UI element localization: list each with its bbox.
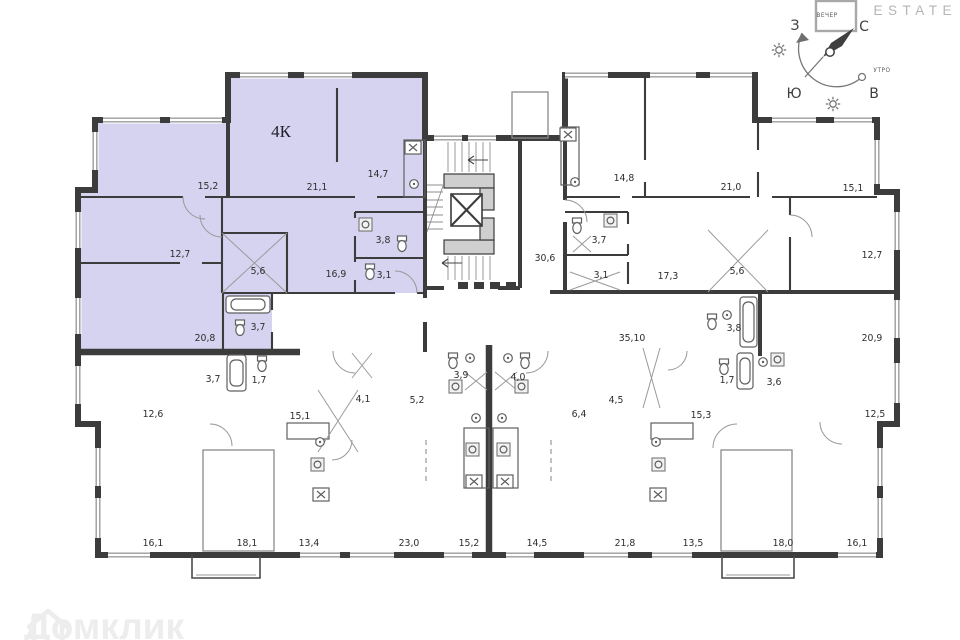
room-area-label: 5,2: [410, 395, 425, 406]
room-area-label: 15,2: [459, 538, 480, 549]
room-area-label-highlighted: 15,2: [198, 181, 219, 192]
room-area-label: 12,6: [143, 409, 164, 420]
room-area-label: 15,3: [691, 410, 712, 421]
room-area-label: 3,7: [592, 235, 607, 246]
room-area-label-highlighted: 3,8: [376, 235, 391, 246]
room-area-label: 3,8: [727, 323, 742, 334]
room-area-label: 6,4: [572, 409, 587, 420]
closet-x-icon: [573, 236, 591, 252]
room-area-label: 12,5: [865, 409, 886, 420]
compass-north: С: [859, 19, 869, 35]
washer-icon: [652, 458, 665, 471]
room-area-label-highlighted: 14,7: [368, 169, 389, 180]
room-area-label-highlighted: 20,8: [195, 333, 216, 344]
room-area-label-highlighted: 5,6: [251, 266, 266, 277]
stove-icon: [405, 141, 421, 154]
washer-icon: [497, 443, 510, 456]
room-area-label: 3,9: [454, 370, 469, 381]
room-area-label: 18,1: [237, 538, 258, 549]
stove-icon: [313, 488, 329, 501]
room-area-label-highlighted: 21,1: [307, 182, 328, 193]
room-area-label: 4,0: [511, 372, 526, 383]
toilet-icon: [449, 353, 458, 369]
room-area-label-highlighted: 16,9: [326, 269, 347, 280]
toilet-icon: [573, 218, 582, 234]
room-area-label: 13,4: [299, 538, 320, 549]
sun-icon: [772, 43, 786, 57]
room-area-label: 17,3: [658, 271, 679, 282]
sink-icon: [652, 438, 661, 447]
bathtub-icon: [740, 297, 757, 347]
closet-x-icon: [708, 230, 768, 292]
compass-morning-label: УТРО: [873, 68, 890, 74]
washer-icon: [604, 214, 617, 227]
compass-south: Ю: [786, 86, 801, 102]
watermark-logo: Домклик: [24, 606, 184, 640]
room-area-label: 16,1: [143, 538, 164, 549]
kitchen-counter: [287, 423, 329, 439]
compass-arc: [799, 33, 862, 87]
room-area-label: 4,5: [609, 395, 624, 406]
room-area-label: 20,9: [862, 333, 883, 344]
bathtub-icon: [226, 296, 270, 313]
sink-icon: [498, 414, 507, 423]
toilet-icon: [236, 320, 245, 336]
compass-evening-label: ВЕЧЕР: [816, 13, 837, 19]
compass-east: В: [869, 86, 879, 102]
sink-icon: [472, 414, 481, 423]
estate-logo-text: ESTATE: [873, 3, 957, 18]
room-area-label: 15,1: [290, 411, 311, 422]
sun-icon: [826, 97, 840, 111]
sink-icon: [504, 354, 513, 363]
sink-icon: [316, 438, 325, 447]
room-area-label-highlighted: 12,7: [170, 249, 191, 260]
closet-x-icon: [643, 348, 660, 408]
closet-x-icon: [352, 353, 372, 378]
washer-icon: [311, 458, 324, 471]
stove-icon: [497, 475, 513, 488]
room-area-label-highlighted: 3,1: [377, 270, 392, 281]
room-area-label: 21,8: [615, 538, 636, 549]
room-area-label: 13,5: [683, 538, 704, 549]
room-area-label: 3,6: [767, 377, 782, 388]
washer-icon: [359, 218, 372, 231]
washer-icon: [466, 443, 479, 456]
stair-core: [427, 142, 516, 289]
stove-icon: [650, 488, 666, 501]
toilet-icon: [720, 359, 729, 375]
room-area-label: 16,1: [847, 538, 868, 549]
floorplan-page: 15,221,114,712,75,616,93,83,120,83,730,6…: [0, 0, 960, 640]
room-area-label: 14,5: [527, 538, 548, 549]
washer-icon: [771, 353, 784, 366]
room-area-label: 23,0: [399, 538, 420, 549]
room-area-label: 35,10: [619, 333, 646, 344]
toilet-icon: [708, 314, 717, 330]
room-area-label: 30,6: [535, 253, 556, 264]
kitchen-counter: [651, 423, 693, 439]
room-area-label: 21,0: [721, 182, 742, 193]
room-area-label: 4,1: [356, 394, 371, 405]
svg-text:4К: 4К: [271, 122, 292, 141]
room-area-label: 12,7: [862, 250, 883, 261]
stove-icon: [466, 475, 482, 488]
stove-icon: [560, 128, 576, 141]
bathtub-icon: [227, 355, 246, 391]
room-area-label: 18,0: [773, 538, 794, 549]
bathtub-icon: [737, 353, 753, 389]
floor-plan-svg: 15,221,114,712,75,616,93,83,120,83,730,6…: [0, 0, 960, 640]
sink-icon: [410, 180, 419, 189]
room-area-label: 14,8: [614, 173, 635, 184]
house-icon: [24, 606, 72, 640]
sink-icon: [759, 358, 768, 367]
room-area-label: 5,6: [730, 266, 745, 277]
toilet-icon: [398, 236, 407, 252]
sink-icon: [723, 311, 732, 320]
room-area-label: 3,1: [594, 270, 609, 281]
room-area-label: 1,7: [252, 375, 267, 386]
compass-west: З: [791, 18, 800, 34]
sink-icon: [571, 178, 580, 187]
washer-icon: [449, 380, 462, 393]
toilet-icon: [258, 356, 267, 372]
toilet-icon: [366, 264, 375, 280]
room-area-label: 15,1: [843, 183, 864, 194]
room-area-label-highlighted: 3,7: [251, 322, 266, 333]
room-area-label: 1,7: [720, 375, 735, 386]
sink-icon: [466, 354, 475, 363]
apartment-type-label: 4К: [271, 122, 292, 141]
toilet-icon: [521, 353, 530, 369]
room-area-label: 3,7: [206, 374, 221, 385]
